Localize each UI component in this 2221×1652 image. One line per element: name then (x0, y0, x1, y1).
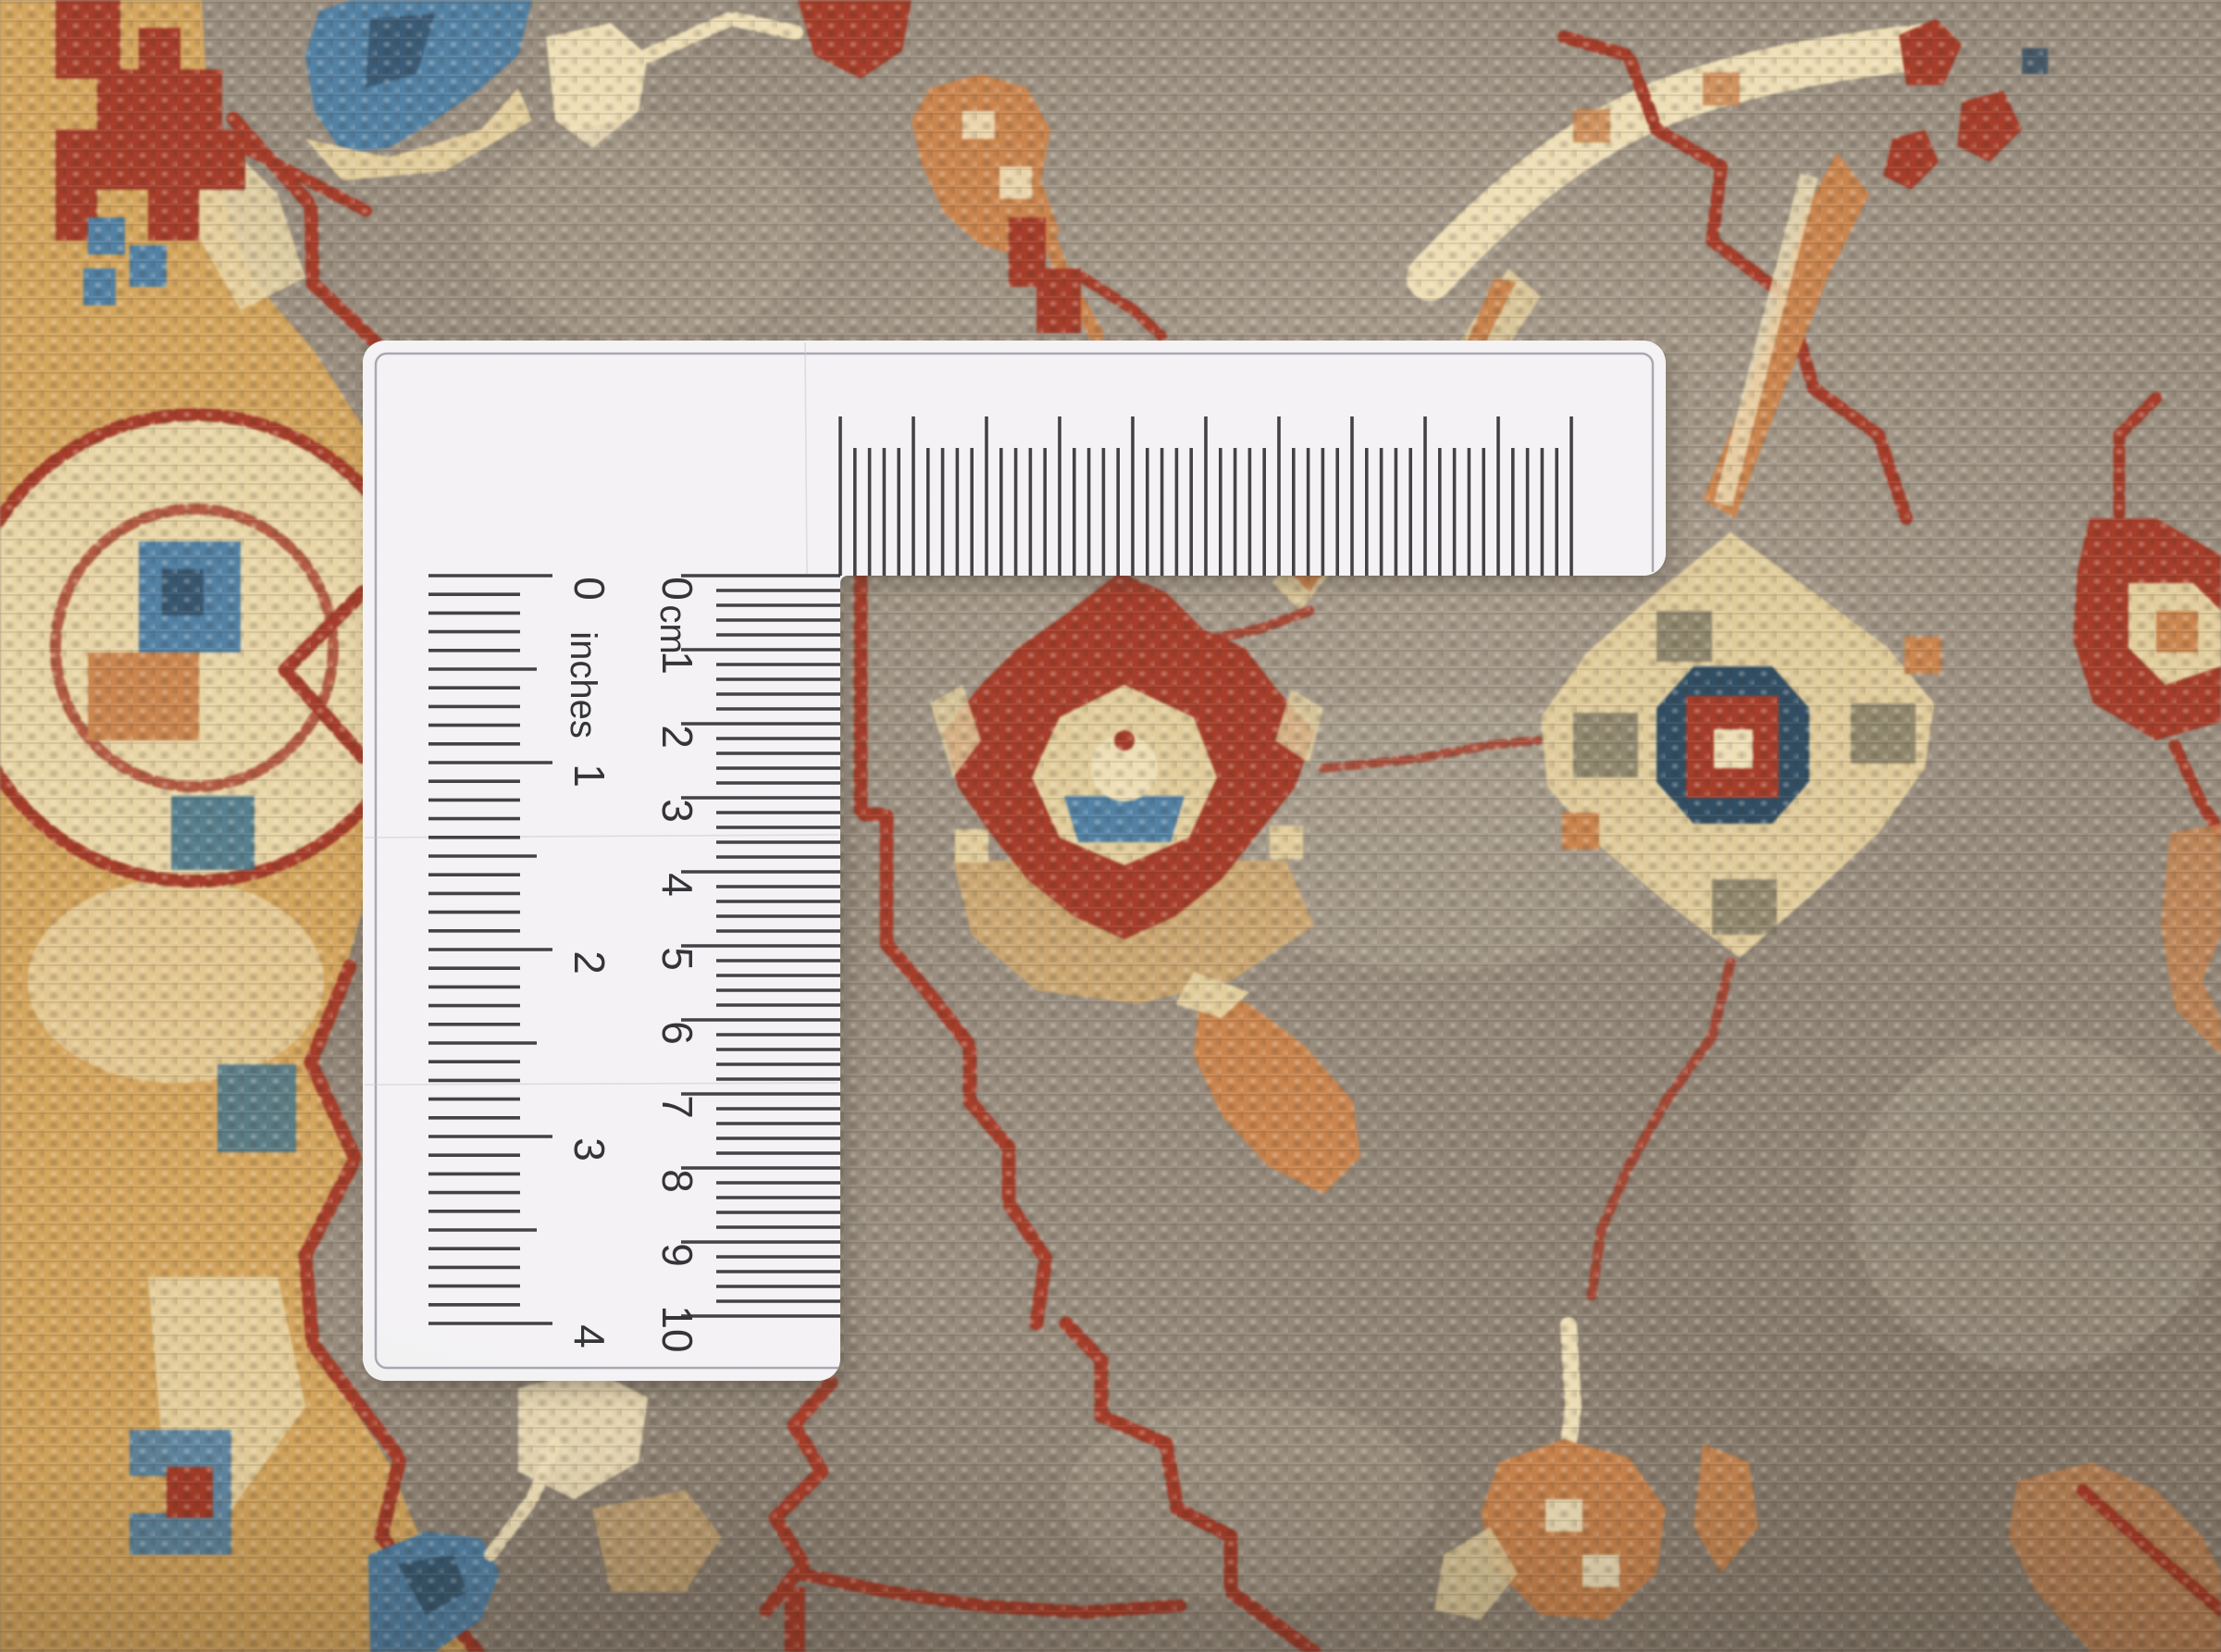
cm-number: 6 (653, 1021, 701, 1045)
inch-number: 2 (565, 950, 614, 975)
cm-number: 10 (653, 1305, 701, 1352)
cm-number: 0 (653, 577, 701, 601)
inch-number: 3 (565, 1137, 614, 1161)
cm-number: 2 (653, 725, 701, 749)
inch-number: 4 (565, 1324, 614, 1348)
cm-number: 1 (653, 651, 701, 675)
l-ruler: 012345678910cm01234inches (0, 0, 2221, 1652)
cm-number: 8 (653, 1169, 701, 1193)
cm-number: 4 (653, 873, 701, 897)
cm-number: 7 (653, 1095, 701, 1119)
inch-number: 0 (565, 577, 614, 601)
cm-number: 9 (653, 1243, 701, 1267)
cm-unit-label: cm (652, 604, 693, 653)
photo-canvas: 012345678910cm01234inches (0, 0, 2221, 1652)
cm-number: 5 (653, 947, 701, 971)
inches-unit-label: inches (563, 631, 603, 739)
inch-number: 1 (565, 764, 614, 788)
cm-number: 3 (653, 799, 701, 823)
